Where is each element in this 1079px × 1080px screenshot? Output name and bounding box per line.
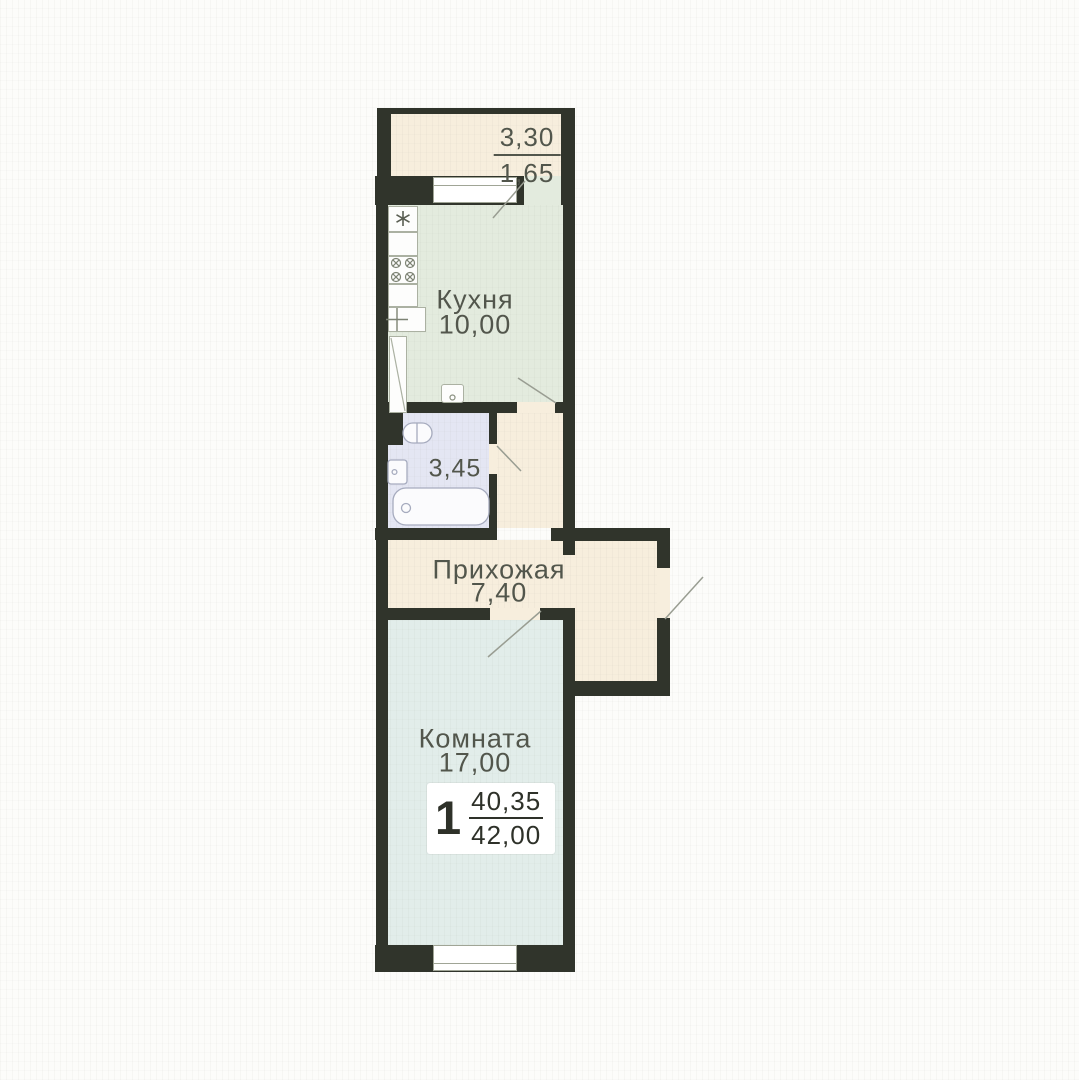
hallway-area-value: 7,40 [471, 580, 528, 607]
bathroom-door-swing [497, 446, 521, 471]
sink-asterisk-icon [397, 211, 410, 226]
total-area-value: 42,00 [471, 819, 541, 848]
kitchen-door-swing [518, 378, 556, 403]
room-area-value: 17,00 [439, 750, 512, 777]
living-area-value: 40,35 [469, 788, 543, 819]
entrance-door-swing [665, 577, 703, 619]
stove-burners-icon [392, 259, 415, 282]
bathroom-area-value: 3,45 [429, 457, 482, 482]
balcony-dimensions: 3,30 1,65 [494, 124, 561, 186]
balcony-dim-numerator: 3,30 [494, 124, 561, 156]
balcony-dim-denominator: 1,65 [494, 160, 561, 186]
kitchen-area-value: 10,00 [439, 312, 512, 339]
room-count: 1 [435, 797, 461, 839]
worktop-cross-icon [386, 308, 408, 331]
apartment-summary-badge: 1 40,35 42,00 [427, 783, 555, 854]
floorplan-canvas: 3,30 1,65 Кухня 10,00 3,45 Прихожая 7,40… [0, 0, 1079, 1080]
toilet-icon [403, 423, 432, 443]
bathtub-icon [393, 488, 489, 525]
kitchen-sink-drain [450, 395, 455, 400]
washbasin-icon [388, 460, 407, 484]
room-door-swing [488, 611, 541, 657]
cabinet-diagonal-line [391, 338, 405, 411]
area-fraction: 40,35 42,00 [469, 788, 543, 848]
